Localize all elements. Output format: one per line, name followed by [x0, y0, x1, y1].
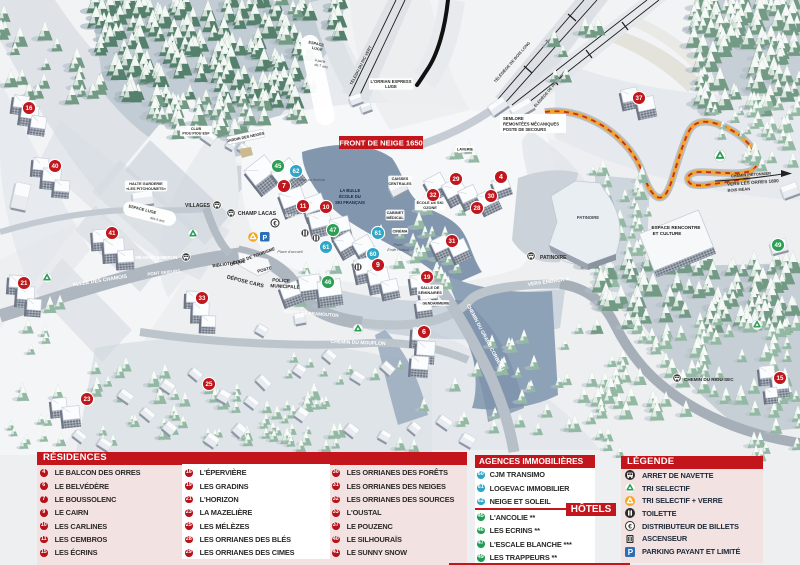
svg-text:30: 30 [488, 193, 495, 200]
svg-text:41: 41 [109, 230, 116, 237]
svg-text:P: P [262, 235, 267, 242]
svg-text:POSTE DE SECOURS: POSTE DE SECOURS [503, 127, 546, 132]
svg-text:SEMLORE: SEMLORE [503, 116, 524, 121]
svg-text:ET CULTURE: ET CULTURE [653, 231, 682, 236]
svg-text:46: 46 [325, 279, 332, 286]
svg-text:CABINET: CABINET [387, 211, 405, 215]
svg-text:Place du festival: Place du festival [297, 178, 325, 182]
svg-text:19: 19 [424, 274, 431, 281]
svg-text:GENDARMERIE: GENDARMERIE [423, 301, 451, 305]
svg-text:Émile Hodoul: Émile Hodoul [387, 247, 409, 252]
svg-text:29: 29 [453, 176, 460, 183]
svg-text:POLICE: POLICE [272, 278, 291, 285]
svg-text:HALTE GARDERIE: HALTE GARDERIE [129, 182, 163, 186]
svg-text:SKI FRANÇAIS: SKI FRANÇAIS [335, 200, 365, 205]
svg-text:BOIS MÉAN ET EMBRUN: BOIS MÉAN ET EMBRUN [123, 253, 178, 260]
svg-text:FRONT DE NEIGE 1650: FRONT DE NEIGE 1650 [339, 139, 423, 148]
svg-text:SALLE DE: SALLE DE [421, 286, 440, 290]
svg-text:37: 37 [636, 95, 643, 102]
svg-text:CHEMIN DU RIOU SEC: CHEMIN DU RIOU SEC [684, 377, 734, 382]
svg-text:49: 49 [775, 242, 782, 249]
svg-text:33: 33 [199, 295, 206, 302]
svg-text:Place: Place [394, 243, 403, 247]
svg-text:PIOU PIOU ESF: PIOU PIOU ESF [182, 132, 210, 136]
svg-text:LAVERIE: LAVERIE [457, 147, 474, 151]
svg-text:REMONTÉES MÉCANIQUES: REMONTÉES MÉCANIQUES [503, 122, 559, 127]
svg-text:31: 31 [449, 238, 456, 245]
svg-text:6: 6 [422, 329, 426, 336]
svg-text:32: 32 [430, 192, 437, 199]
svg-text:25: 25 [206, 381, 213, 388]
svg-text:CLUB: CLUB [191, 127, 202, 131]
svg-text:62: 62 [293, 168, 300, 175]
svg-text:VILLAGES: VILLAGES [185, 203, 211, 209]
svg-text:PATINOIRE: PATINOIRE [577, 215, 599, 220]
svg-text:23: 23 [84, 396, 91, 403]
svg-text:10: 10 [323, 204, 330, 211]
svg-text:LUGE: LUGE [385, 84, 397, 89]
svg-text:9: 9 [376, 262, 380, 269]
svg-text:SÉMINAIRES: SÉMINAIRES [418, 290, 442, 295]
svg-text:16: 16 [26, 105, 33, 112]
svg-text:MÉDICAL: MÉDICAL [386, 215, 404, 220]
svg-text:60: 60 [370, 251, 377, 258]
svg-text:P: P [628, 548, 634, 557]
svg-text:CAISSES: CAISSES [392, 177, 409, 181]
svg-text:€: € [628, 524, 632, 531]
svg-text:ÉCOLE DU: ÉCOLE DU [339, 194, 361, 199]
svg-text:15: 15 [777, 375, 784, 382]
svg-text:CINÉMA: CINÉMA [393, 228, 408, 233]
svg-text:7: 7 [282, 183, 286, 190]
svg-text:CHAMP LACAS: CHAMP LACAS [238, 211, 277, 217]
svg-text:11: 11 [300, 203, 307, 210]
svg-text:45: 45 [275, 163, 282, 170]
svg-text:61: 61 [323, 244, 330, 251]
svg-text:47: 47 [330, 227, 337, 234]
svg-text:28: 28 [474, 205, 481, 212]
svg-text:61: 61 [375, 230, 382, 237]
svg-text:PATINOIRE: PATINOIRE [540, 255, 567, 261]
svg-text:LA BULLE: LA BULLE [340, 188, 361, 193]
svg-text:40: 40 [52, 163, 59, 170]
svg-text:Place d'accueil: Place d'accueil [277, 250, 302, 254]
svg-text:ESPACE RENCONTRE: ESPACE RENCONTRE [652, 225, 701, 230]
svg-text:OZONE: OZONE [423, 206, 437, 210]
svg-text:4: 4 [499, 174, 503, 181]
svg-text:CENTRALES: CENTRALES [388, 182, 412, 186]
svg-text:«LES PITCHOUNETS»: «LES PITCHOUNETS» [126, 187, 166, 191]
svg-text:21: 21 [21, 280, 28, 287]
